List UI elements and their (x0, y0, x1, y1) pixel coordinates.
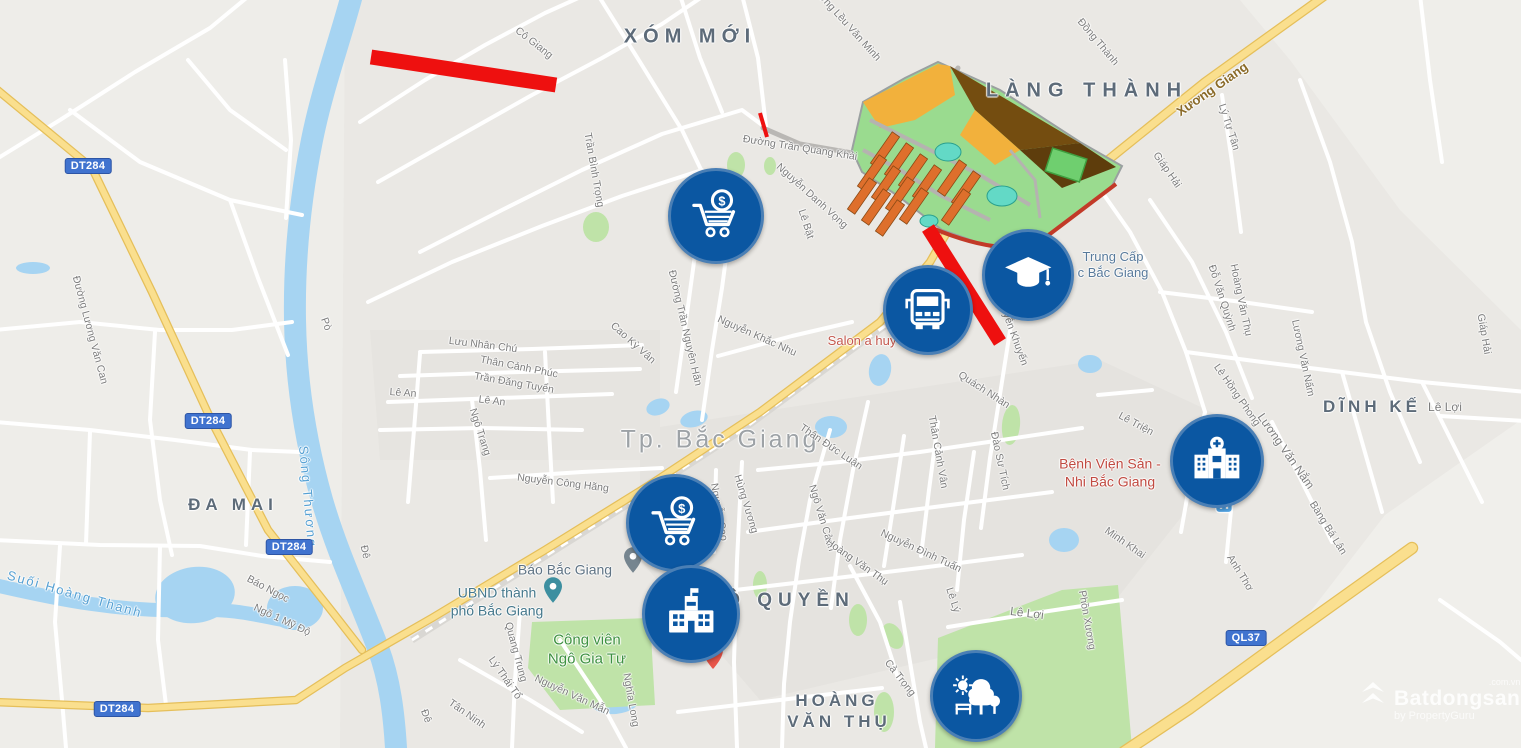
master-plan-pond (987, 186, 1017, 206)
street-road (380, 428, 582, 430)
street-road (368, 170, 702, 302)
street-road (1440, 416, 1521, 421)
green-area (583, 212, 609, 242)
marker-hospital-icon[interactable] (1170, 414, 1264, 508)
street-road (1160, 292, 1312, 312)
pond (1078, 355, 1102, 373)
map-canvas[interactable]: XÓM MỚILÀNG THÀNHĐA MAIDĨNH KẾÔ QUYỀNHOÀ… (0, 0, 1521, 748)
terrain-tint (1240, 0, 1521, 330)
street-road (1342, 372, 1382, 512)
street-road (680, 0, 722, 112)
green-area (764, 157, 776, 175)
green-area (874, 692, 894, 732)
route-shield: DT284 (185, 413, 232, 429)
street-road (718, 322, 852, 356)
marker-school-icon[interactable] (642, 565, 740, 663)
pond (1049, 528, 1079, 552)
marker-graduation-icon[interactable] (982, 229, 1074, 321)
master-plan-pond (935, 143, 961, 161)
street-road (1186, 352, 1521, 392)
pond (16, 262, 50, 274)
master-plan-pond (920, 215, 938, 227)
street-road (1222, 95, 1241, 232)
marker-cart-icon[interactable]: $ (668, 168, 764, 264)
svg-text:$: $ (678, 501, 686, 516)
street-road (490, 468, 662, 478)
route-shield: DT284 (266, 539, 313, 555)
marker-cart-icon[interactable]: $ (626, 474, 724, 572)
pin-poi-teal[interactable] (544, 577, 562, 608)
route-shield: DT284 (65, 158, 112, 174)
street-road (1272, 422, 1332, 542)
street-road (1366, 322, 1420, 462)
route-shield: DT284 (94, 701, 141, 717)
route-shield: QL37 (1226, 630, 1267, 646)
pond (815, 416, 847, 438)
red-highlight-segment (371, 57, 556, 85)
marker-bus-icon[interactable] (883, 265, 973, 355)
street-road (512, 610, 520, 748)
street-road (742, 0, 766, 126)
svg-text:$: $ (719, 194, 726, 209)
park-area (528, 618, 655, 710)
marker-park-icon[interactable] (930, 650, 1022, 742)
map-base-graphics (0, 0, 1521, 748)
green-area (849, 604, 867, 636)
pond (866, 352, 893, 387)
